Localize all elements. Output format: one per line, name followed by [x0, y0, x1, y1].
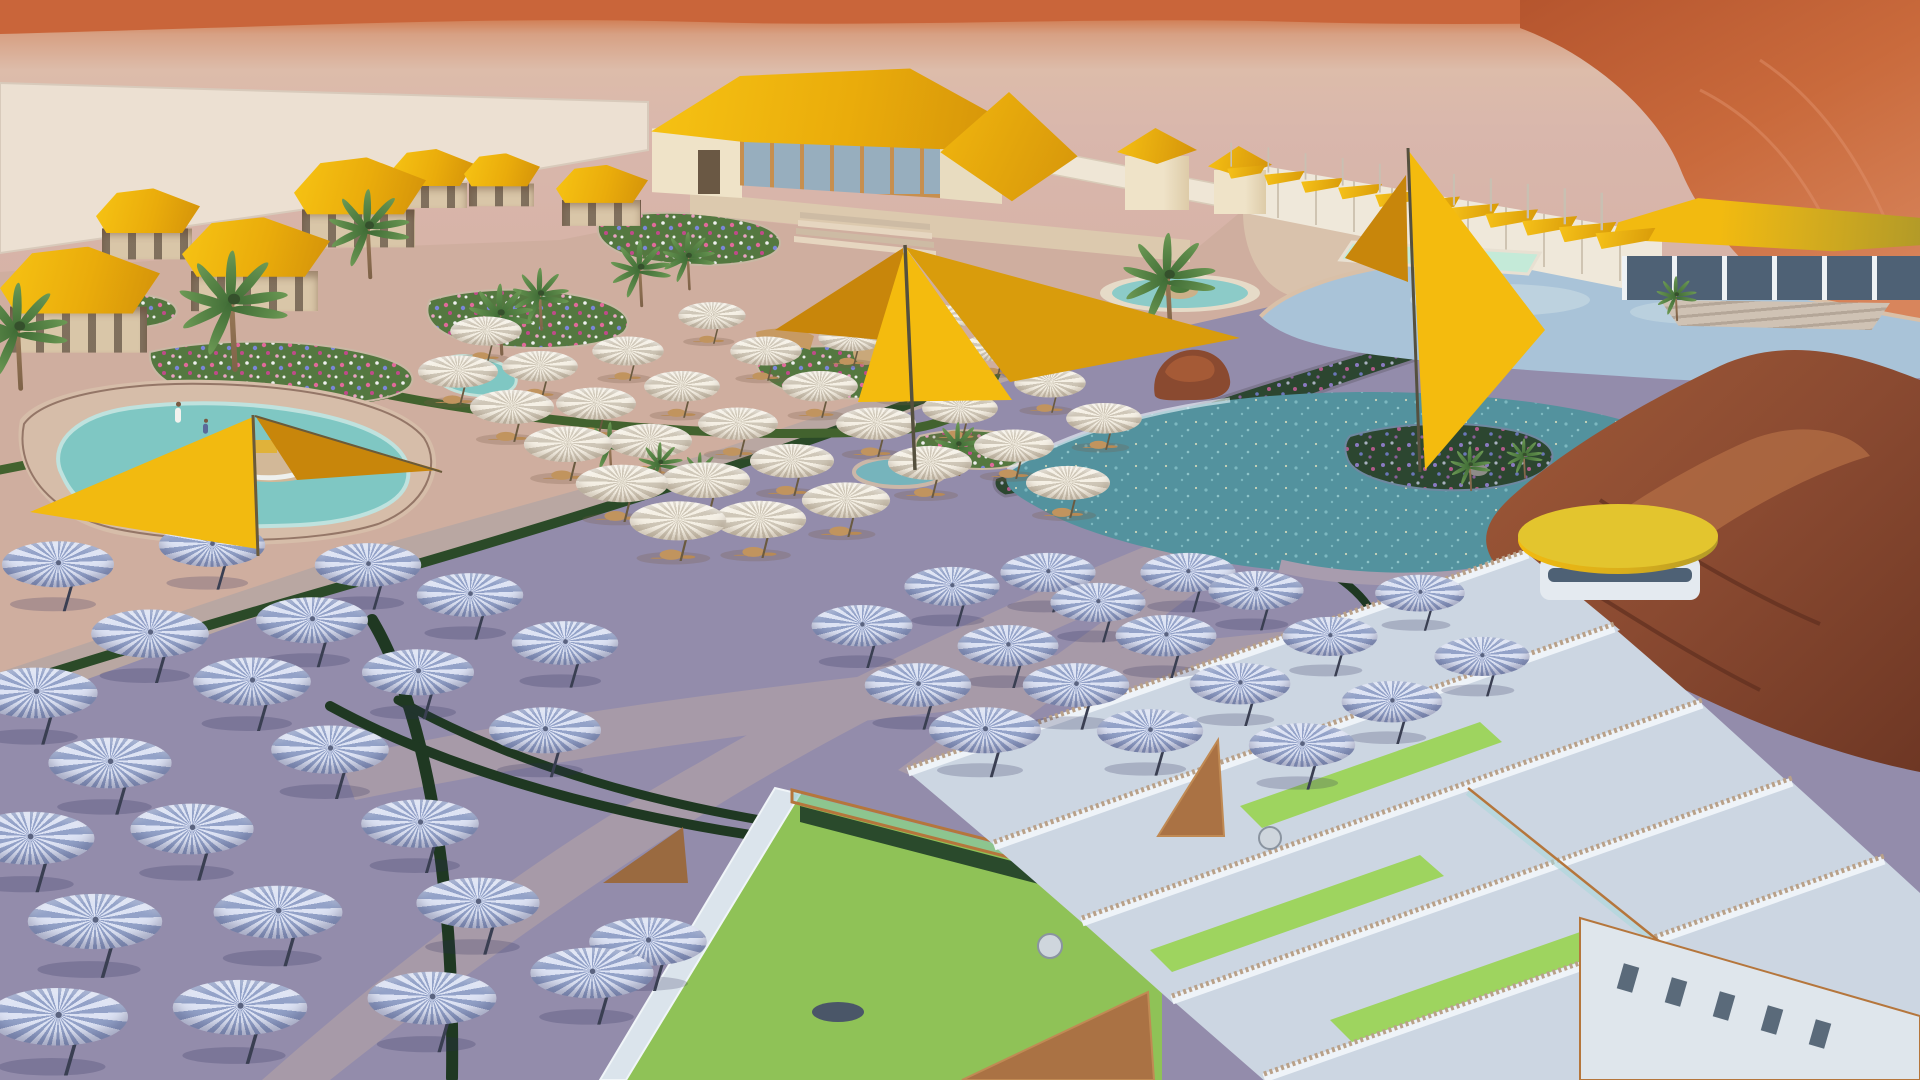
palm-tree [1654, 273, 1699, 321]
umbrella-ground-shadow [1256, 776, 1338, 789]
umbrella-canopy [417, 573, 523, 617]
parasol-canopy [818, 324, 885, 351]
palm-tree [1504, 436, 1545, 479]
shade-umbrella [1375, 575, 1465, 634]
shade-umbrella [1434, 637, 1529, 700]
cafe-parasol [714, 501, 806, 569]
umbrella-canopy [91, 609, 209, 657]
parasol-canopy [644, 371, 720, 402]
umbrella-canopy [489, 707, 601, 753]
palm-tree [606, 235, 674, 307]
umbrella-ground-shadow [539, 1009, 634, 1024]
shade-umbrella [2, 541, 114, 615]
resort-aerial-render [0, 0, 1920, 1080]
parasol-canopy [888, 446, 972, 480]
cafe-parasol [630, 501, 727, 572]
shade-umbrella [1190, 663, 1291, 730]
shade-umbrella [1342, 681, 1443, 748]
umbrella-ground-shadow [182, 1047, 285, 1064]
shade-umbrella [530, 948, 653, 1029]
umbrella-canopy [1249, 723, 1355, 767]
parasol-canopy [630, 501, 727, 540]
shade-umbrella [0, 812, 94, 897]
cafe-parasol [1066, 403, 1142, 459]
parasol-canopy [870, 359, 941, 388]
umbrella-ground-shadow [424, 626, 506, 639]
umbrella-canopy [1097, 709, 1203, 753]
awning-flap [1596, 228, 1656, 249]
shade-umbrella [489, 707, 601, 781]
parasol-canopy [662, 462, 750, 498]
awning-mast [1490, 178, 1492, 211]
parasol-canopy [962, 334, 1029, 361]
cafe-parasol [888, 446, 972, 508]
shade-umbrella [271, 725, 389, 803]
umbrella-canopy [416, 878, 539, 929]
umbrella-canopy [271, 725, 389, 773]
palm-tree [1116, 226, 1220, 336]
shade-umbrella [417, 573, 523, 643]
shade-umbrella [1249, 723, 1355, 793]
parasol-canopy [576, 465, 668, 502]
shade-umbrella [159, 523, 265, 593]
shade-umbrella [28, 894, 162, 983]
umbrella-ground-shadow [1382, 620, 1451, 631]
umbrella-ground-shadow [166, 576, 248, 589]
umbrella-canopy [929, 707, 1041, 753]
parasol-canopy [974, 429, 1054, 461]
cabana-roof [464, 153, 540, 186]
umbrella-ground-shadow [370, 858, 460, 873]
umbrella-canopy [958, 625, 1059, 666]
umbrella-canopy [0, 668, 98, 719]
awning-flap [1301, 178, 1343, 193]
umbrella-canopy [865, 663, 971, 707]
umbrella-ground-shadow [1123, 665, 1200, 678]
awning-mast [1601, 193, 1603, 231]
parasol-canopy [714, 501, 806, 538]
awning-mast [1453, 174, 1455, 206]
palm-tree [1448, 443, 1493, 491]
visitor-body [175, 408, 181, 423]
umbrella-canopy [193, 657, 311, 705]
objects-layer [0, 0, 1920, 1080]
umbrella-ground-shadow [0, 1058, 106, 1076]
parasol-canopy [905, 305, 971, 332]
awning-mast [1230, 143, 1231, 167]
umbrella-ground-shadow [1289, 664, 1362, 676]
cabin-awning [1227, 148, 1269, 188]
parasol-canopy [730, 337, 801, 366]
umbrella-canopy [256, 597, 368, 643]
umbrella-ground-shadow [1441, 684, 1514, 696]
parasol-canopy [418, 355, 498, 387]
umbrella-ground-shadow [425, 939, 520, 954]
shade-umbrella [1282, 617, 1377, 680]
visitor-head [204, 419, 208, 423]
awning-flap [1264, 171, 1304, 185]
parasol-canopy [502, 351, 578, 382]
umbrella-ground-shadow [139, 865, 234, 880]
visitor-body [203, 424, 208, 434]
parasol-canopy [836, 407, 916, 439]
parasol-canopy [592, 337, 663, 366]
parasol-canopy [556, 387, 636, 419]
cabana-bungalow [464, 153, 540, 207]
parasol-canopy [1014, 369, 1085, 398]
parasol-canopy [782, 371, 858, 402]
umbrella-ground-shadow [1104, 762, 1186, 775]
shade-umbrella [904, 567, 999, 630]
umbrella-canopy [1375, 575, 1465, 612]
umbrella-ground-shadow [519, 674, 601, 687]
parasol-canopy [678, 302, 745, 329]
shade-umbrella [1097, 709, 1203, 779]
shade-umbrella [361, 799, 479, 877]
umbrella-canopy [904, 567, 999, 606]
umbrella-canopy [159, 523, 265, 567]
umbrella-ground-shadow [377, 1036, 476, 1052]
umbrella-canopy [130, 804, 253, 855]
palm-tree [323, 183, 413, 279]
umbrella-canopy [1023, 663, 1129, 707]
umbrella-canopy [315, 543, 421, 587]
shade-umbrella [193, 657, 311, 735]
umbrella-ground-shadow [100, 668, 190, 683]
awning-mast [1379, 164, 1380, 193]
cabana-bungalow [556, 165, 648, 227]
parasol-canopy [470, 390, 554, 424]
cafe-parasol [802, 482, 890, 547]
parasol-canopy [750, 444, 834, 478]
awning-mast [1416, 169, 1418, 199]
umbrella-canopy [214, 886, 343, 939]
umbrella-canopy [530, 948, 653, 999]
umbrella-canopy [0, 988, 128, 1046]
umbrella-ground-shadow [1215, 618, 1288, 630]
parasol-canopy [698, 407, 778, 439]
umbrella-canopy [512, 621, 618, 665]
umbrella-ground-shadow [37, 961, 140, 978]
umbrella-canopy [361, 799, 479, 847]
umbrella-canopy [28, 894, 162, 949]
shade-umbrella [416, 878, 539, 959]
shade-umbrella [173, 980, 307, 1069]
visitor [199, 412, 213, 438]
umbrella-canopy [2, 541, 114, 587]
shade-umbrella [512, 621, 618, 691]
umbrella-canopy [0, 812, 94, 865]
parasol-canopy [524, 426, 612, 462]
umbrella-ground-shadow [370, 705, 456, 719]
awning-mast [1305, 153, 1306, 179]
umbrella-ground-shadow [937, 763, 1023, 777]
umbrella-canopy [362, 649, 474, 695]
umbrella-ground-shadow [1349, 731, 1426, 744]
cabin-awning [1596, 200, 1661, 263]
shade-umbrella [929, 707, 1041, 781]
umbrella-canopy [368, 972, 497, 1025]
shade-umbrella [214, 886, 343, 971]
palm-tree [171, 242, 293, 372]
umbrella-canopy [1434, 637, 1529, 676]
umbrella-canopy [812, 605, 913, 646]
umbrella-ground-shadow [497, 763, 583, 777]
umbrella-canopy [1116, 615, 1217, 656]
parasol-canopy [1066, 403, 1142, 434]
awning-mast [1268, 147, 1269, 172]
parasol-canopy [802, 482, 890, 518]
shade-umbrella [130, 804, 253, 885]
awning-flap [1227, 165, 1265, 179]
umbrella-ground-shadow [280, 784, 370, 799]
cabana-front [562, 200, 641, 226]
umbrella-canopy [1208, 571, 1303, 610]
palm-tree [0, 276, 72, 391]
umbrella-canopy [173, 980, 307, 1035]
shade-umbrella [368, 972, 497, 1057]
cabana-front [469, 184, 534, 207]
cabana-roof [556, 165, 648, 203]
shade-umbrella [91, 609, 209, 687]
umbrella-canopy [48, 738, 171, 789]
parasol-canopy [450, 317, 521, 346]
visitor [171, 400, 185, 426]
shade-umbrella [812, 605, 913, 672]
cafe-parasol [1026, 466, 1110, 528]
shade-umbrella [362, 649, 474, 723]
visitor-head [176, 402, 181, 407]
umbrella-canopy [1282, 617, 1377, 656]
umbrella-ground-shadow [223, 950, 322, 966]
umbrella-ground-shadow [10, 597, 96, 611]
shade-umbrella [0, 988, 128, 1080]
awning-mast [1527, 184, 1529, 219]
cafe-parasol [905, 305, 971, 353]
parasol-canopy [1026, 466, 1110, 500]
awning-mast [1564, 188, 1566, 224]
awning-mast [1342, 158, 1343, 186]
umbrella-canopy [1190, 663, 1291, 704]
umbrella-canopy [1342, 681, 1443, 722]
